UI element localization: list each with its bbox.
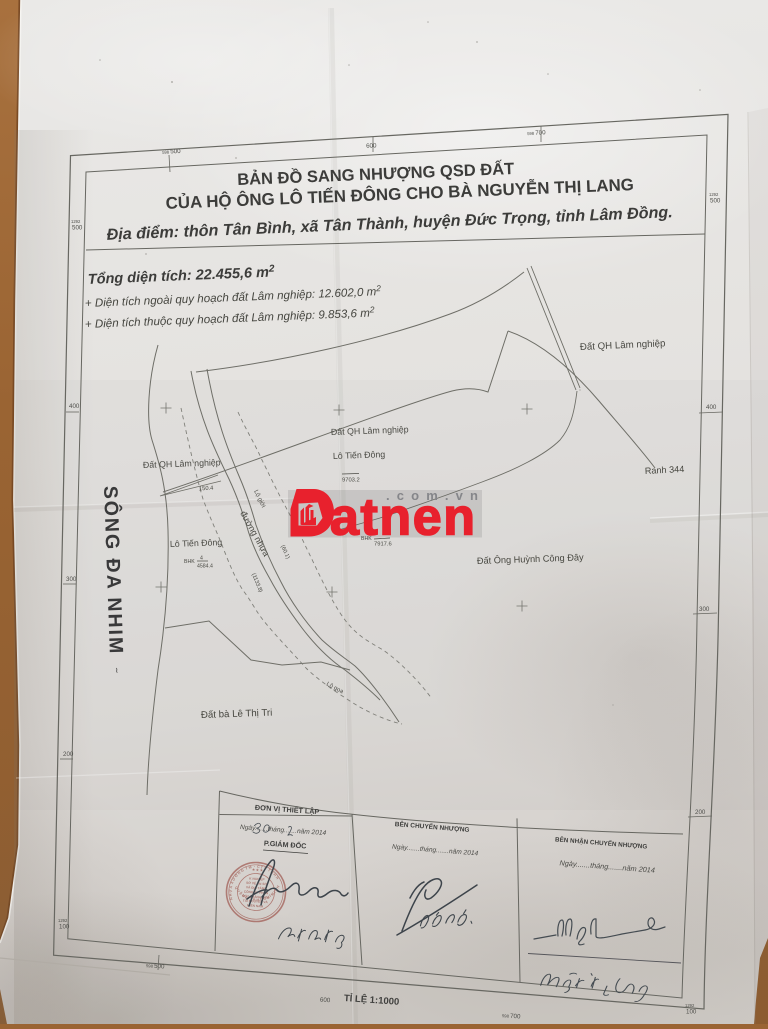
svg-text:598 500: 598 500 <box>162 148 181 156</box>
svg-text:200: 200 <box>63 751 74 758</box>
svg-text:atnen: atnen <box>330 489 475 547</box>
svg-text:9703.2: 9703.2 <box>342 478 360 484</box>
svg-text:600: 600 <box>320 997 331 1005</box>
svg-text:300: 300 <box>66 576 77 583</box>
svg-text:600: 600 <box>366 142 377 150</box>
svg-text:200: 200 <box>695 809 706 816</box>
svg-text:4: 4 <box>200 556 203 562</box>
svg-text:598 700: 598 700 <box>527 129 546 137</box>
svg-text:300: 300 <box>699 606 710 613</box>
svg-text:400: 400 <box>706 404 717 411</box>
svg-text:Lô Tiến Đông: Lô Tiến Đông <box>333 449 386 461</box>
svg-text:400: 400 <box>69 403 80 410</box>
svg-text:BHK: BHK <box>184 559 195 565</box>
svg-text:150.4: 150.4 <box>199 485 215 492</box>
svg-text:4584.4: 4584.4 <box>197 564 213 570</box>
svg-text:Ranh 344: Ranh 344 <box>645 464 685 476</box>
svg-text:Lô Tiến Đông: Lô Tiến Đông <box>170 537 223 549</box>
